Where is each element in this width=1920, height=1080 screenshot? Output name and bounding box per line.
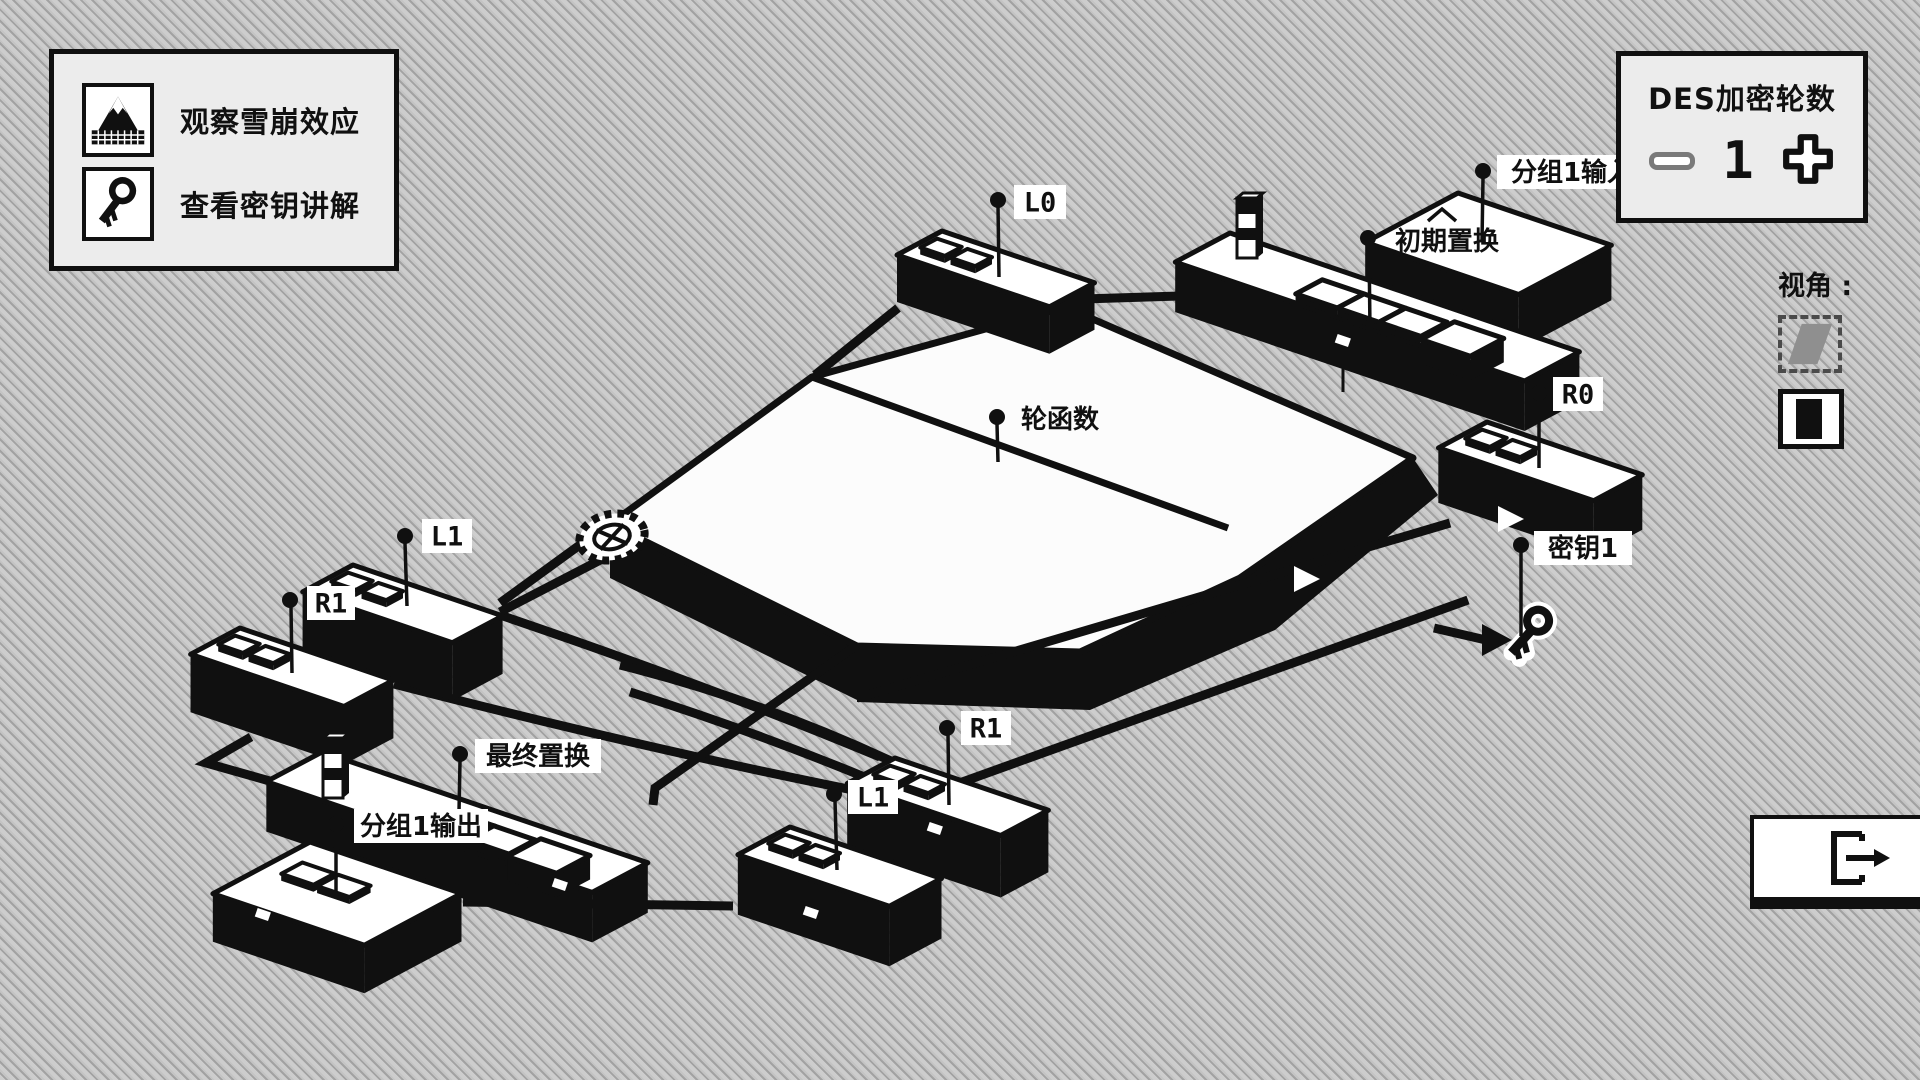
- label-leader: [948, 735, 949, 805]
- rounds-value: 1: [1722, 135, 1753, 187]
- label-text: L0: [1024, 188, 1057, 219]
- label-dot: [1531, 385, 1547, 401]
- key-icon: [82, 167, 154, 241]
- menu-item-label: 查看密钥讲解: [180, 183, 360, 225]
- label-dot: [1475, 163, 1491, 179]
- view-panel: 视角 :: [1778, 264, 1852, 449]
- wire: [1434, 628, 1486, 640]
- label-leader: [459, 761, 460, 812]
- label-text: L1: [431, 522, 464, 553]
- exit-button[interactable]: [1750, 815, 1920, 909]
- label-dot: [1360, 230, 1376, 246]
- label-text: 初期置换: [1395, 227, 1500, 257]
- pillar-icon: [323, 733, 349, 798]
- label-leader: [835, 801, 837, 870]
- label-leader: [997, 424, 998, 462]
- label-text: L1: [857, 783, 890, 814]
- rounds-panel: DES加密轮数 1: [1616, 51, 1868, 223]
- label-dot: [397, 528, 413, 544]
- label-text: 轮函数: [1021, 405, 1100, 435]
- increase-rounds-button[interactable]: [1781, 132, 1835, 189]
- des-visualization-stage: L0初期置换分组1输入R0密钥1轮函数L1R1最终置换分组1输出R1L1 观察雪…: [0, 0, 1920, 1080]
- label-dot: [452, 746, 468, 762]
- minus-icon: [1649, 152, 1695, 170]
- wire: [394, 684, 878, 795]
- label-text: 分组1输出: [360, 811, 482, 842]
- isometric-view-icon: [1787, 323, 1833, 365]
- label-final-permutation: 最终置换: [452, 739, 601, 812]
- view-isometric-button[interactable]: [1778, 315, 1842, 373]
- label-dot: [1513, 537, 1529, 553]
- label-dot: [990, 192, 1006, 208]
- label-dot: [939, 720, 955, 736]
- menu-item-avalanche[interactable]: 观察雪崩效应: [82, 78, 394, 162]
- exit-icon: [1816, 828, 1892, 888]
- label-leader: [291, 607, 292, 673]
- label-text: R1: [315, 589, 348, 620]
- label-text: 最终置换: [486, 741, 591, 772]
- label-leader: [998, 206, 999, 277]
- label-dot: [282, 592, 298, 608]
- label-dot: [826, 786, 842, 802]
- pillar-icon: [1237, 193, 1263, 258]
- menu-item-key-explain[interactable]: 查看密钥讲解: [82, 162, 394, 246]
- label-text: 密钥1: [1548, 533, 1618, 564]
- label-text: R0: [1562, 380, 1595, 411]
- menu-panel: 观察雪崩效应 查看密钥讲解: [49, 49, 399, 271]
- view-front-button[interactable]: [1778, 389, 1844, 449]
- label-dot: [328, 816, 344, 832]
- decrease-rounds-button[interactable]: [1649, 152, 1695, 170]
- label-text: 分组1输入: [1511, 157, 1633, 188]
- view-label: 视角 :: [1778, 264, 1852, 303]
- key-icon-scene: [1502, 607, 1557, 660]
- rounds-title: DES加密轮数: [1621, 76, 1863, 118]
- menu-item-label: 观察雪崩效应: [180, 99, 360, 141]
- label-text: R1: [970, 714, 1003, 745]
- block-l0[interactable]: [897, 231, 1095, 354]
- plus-icon: [1781, 132, 1835, 186]
- label-leader: [1482, 178, 1483, 242]
- label-leader: [1369, 245, 1370, 330]
- front-view-icon: [1796, 399, 1822, 439]
- label-dot: [989, 409, 1005, 425]
- mountain-icon: [82, 83, 154, 157]
- label-leader: [405, 543, 407, 606]
